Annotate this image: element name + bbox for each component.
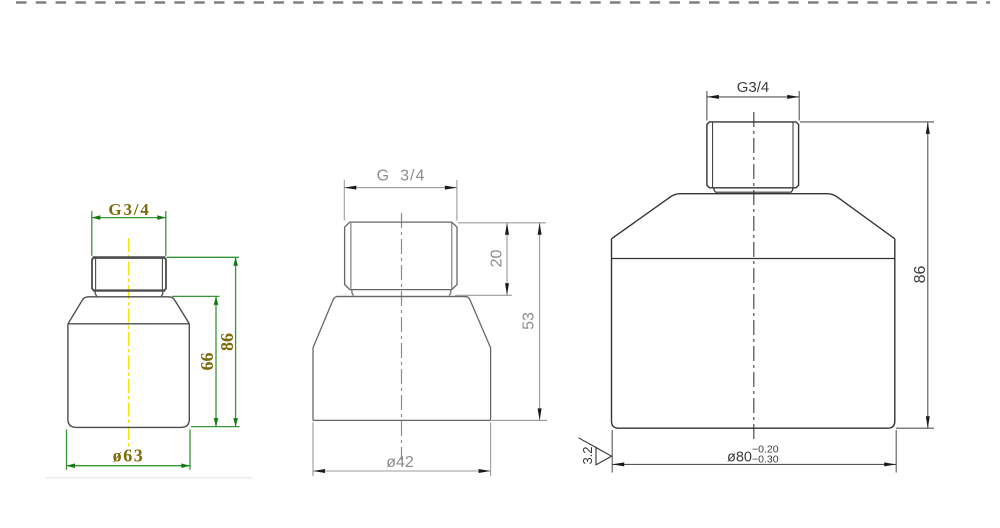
svg-text:20: 20 xyxy=(489,250,506,268)
svg-text:86: 86 xyxy=(912,266,929,284)
svg-text:ø80: ø80 xyxy=(727,450,752,466)
svg-text:86: 86 xyxy=(217,333,237,351)
svg-text:3.2: 3.2 xyxy=(580,446,595,464)
svg-text:ø63: ø63 xyxy=(113,446,145,466)
svg-text:66: 66 xyxy=(197,353,217,371)
svg-text:G3/4: G3/4 xyxy=(108,200,150,219)
svg-text:−0.30: −0.30 xyxy=(752,454,779,466)
svg-text:ø42: ø42 xyxy=(386,454,414,471)
svg-text:53: 53 xyxy=(521,312,538,330)
svg-text:G 3/4: G 3/4 xyxy=(377,168,426,185)
svg-text:G3/4: G3/4 xyxy=(737,79,770,96)
